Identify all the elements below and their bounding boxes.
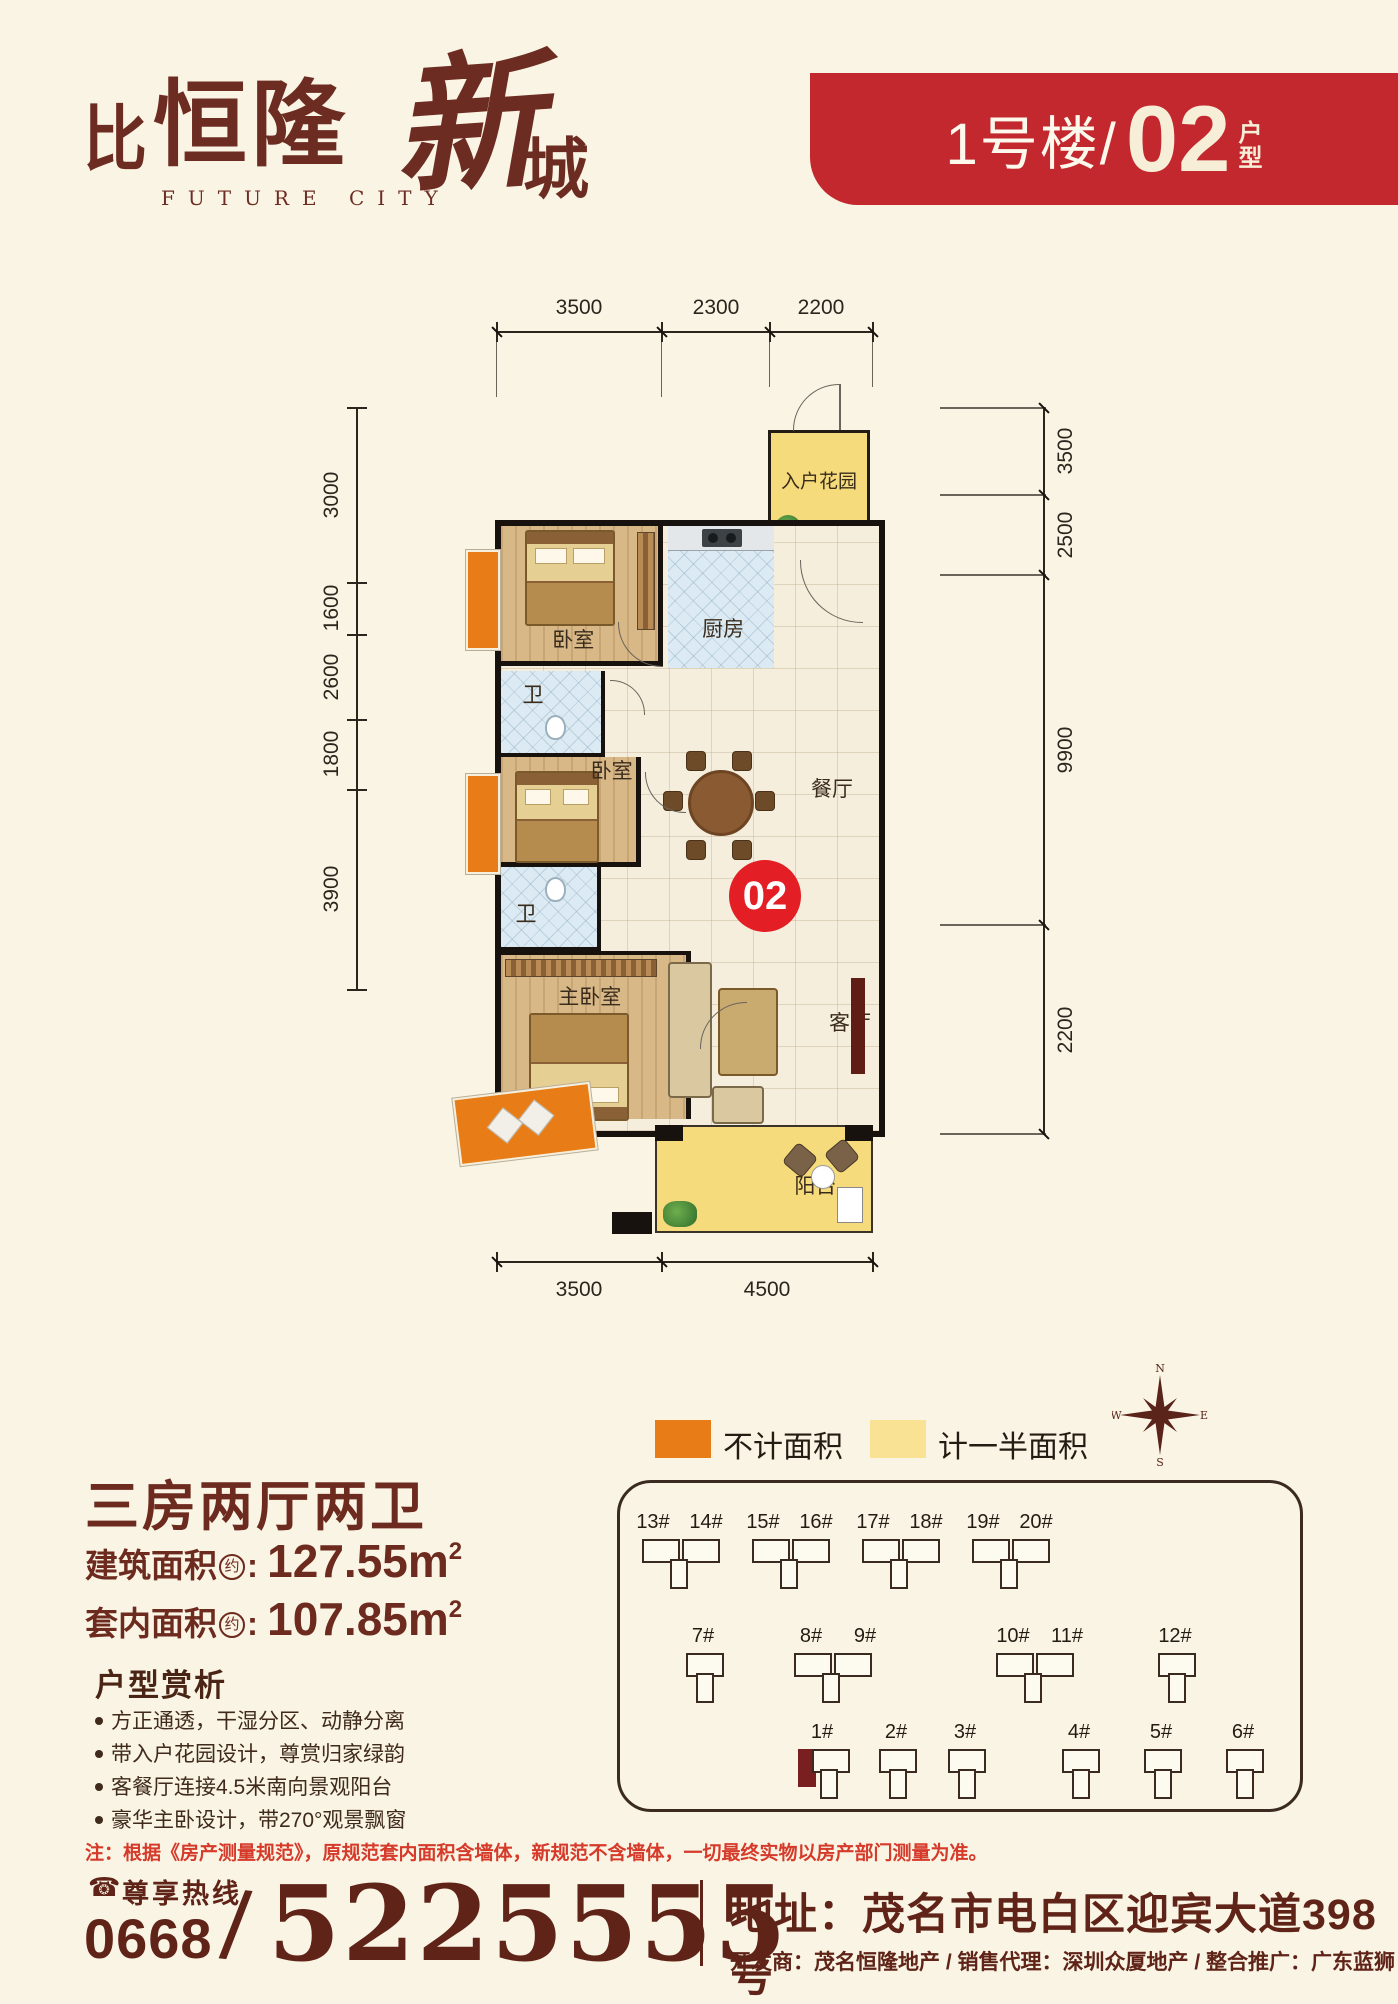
unit-banner: 1号楼/ 02 户 型 <box>810 73 1398 205</box>
door-leaf <box>839 384 841 430</box>
building-label: 9# <box>854 1625 876 1648</box>
room-label-bedroom2: 卧室 <box>591 755 633 785</box>
room-kitchen: 厨房 <box>668 526 774 668</box>
dim-label: 1600 <box>320 585 344 632</box>
unit-number-badge: 02 <box>729 860 801 932</box>
dim-label: 4500 <box>744 1278 791 1302</box>
legend-swatch-yellow <box>870 1420 926 1458</box>
chair-icon <box>732 840 752 860</box>
dim-tick <box>347 789 367 791</box>
legend-label-yellow: 计一半面积 <box>938 1422 1088 1466</box>
phone-icon: ☎ <box>88 1872 120 1903</box>
dim-label: 9900 <box>1054 727 1078 774</box>
analysis-heading: 户型赏析 <box>95 1660 227 1705</box>
ext-line <box>940 407 1046 409</box>
banner-suffix: 户 型 <box>1238 121 1262 171</box>
bullet-dot-icon <box>95 1783 103 1791</box>
colon: : <box>247 1605 267 1642</box>
room-label-bath2: 卫 <box>515 898 536 928</box>
room-label-bath1: 卫 <box>523 679 544 709</box>
banner-building: 1号楼/ <box>946 97 1118 181</box>
wardrobe-icon <box>637 532 655 630</box>
building-label: 14# <box>689 1511 722 1534</box>
dim-label: 2500 <box>1054 512 1078 559</box>
banner-suffix-top: 户 <box>1238 121 1262 146</box>
dim-tick <box>347 407 367 409</box>
building-label: 6# <box>1232 1721 1254 1744</box>
compass: N E S W <box>1112 1362 1208 1468</box>
building-label: 17# <box>856 1511 889 1534</box>
plant-icon <box>663 1201 697 1227</box>
approx-badge: 约 <box>219 1612 245 1638</box>
door-arc <box>793 384 840 431</box>
bed-icon <box>515 771 599 863</box>
ac-unit-icon <box>837 1187 863 1223</box>
dim-tick <box>347 582 367 584</box>
dim-tick <box>347 719 367 721</box>
built-area-value: 127.55m <box>267 1535 449 1587</box>
poster-canvas: { "brand": {"mark":"比","name":"恒隆","scri… <box>0 0 1398 2000</box>
ext-line <box>496 342 497 397</box>
dim-line-bottom <box>497 1261 873 1263</box>
tv-cabinet-icon <box>851 978 865 1074</box>
building-label: 4# <box>1068 1721 1090 1744</box>
dim-label: 3500 <box>556 1278 603 1302</box>
bullet-dot-icon <box>95 1816 103 1824</box>
inner-area-label: 套内面积 <box>85 1605 217 1642</box>
approx-badge: 约 <box>219 1554 245 1580</box>
building-label: 19# <box>966 1511 999 1534</box>
compass-n: N <box>1155 1362 1165 1375</box>
toilet-icon <box>545 715 566 740</box>
dim-label: 2200 <box>798 296 845 320</box>
building-label: 7# <box>692 1625 714 1648</box>
analysis-bullet: 带入户花园设计，尊赏归家绿韵 <box>95 1738 405 1768</box>
building-label: 12# <box>1158 1625 1191 1648</box>
dim-line-left <box>356 408 358 990</box>
dim-tick <box>347 989 367 991</box>
toilet-icon <box>545 877 566 902</box>
room-label-kitchen: 厨房 <box>702 613 744 643</box>
bullet-dot-icon <box>95 1717 103 1725</box>
chair-icon <box>755 791 775 811</box>
building-label: 1# <box>811 1721 833 1744</box>
dim-label: 2600 <box>320 654 344 701</box>
bay-window <box>468 776 498 872</box>
building-label: 18# <box>909 1511 942 1534</box>
building-label: 16# <box>799 1511 832 1534</box>
compass-rose-icon: N E S W <box>1112 1362 1208 1468</box>
building-label: 10# <box>996 1625 1029 1648</box>
inner-area-line: 套内面积约: 107.85m2 <box>85 1592 462 1646</box>
bay-window <box>468 552 498 648</box>
compass-w: W <box>1112 1409 1122 1422</box>
room-bedroom2: 卧室 <box>501 757 641 867</box>
logo-mark: 比 <box>83 82 147 185</box>
ext-line <box>872 342 873 387</box>
room-bath1: 卫 <box>501 671 605 757</box>
layout-title: 三房两厅两卫 <box>85 1462 427 1541</box>
brand-logo: 比 恒隆 FUTURE CITY 新 城 <box>75 40 675 220</box>
dim-label: 2300 <box>693 296 740 320</box>
ext-line <box>940 1133 1046 1135</box>
building-label: 15# <box>746 1511 779 1534</box>
ext-line <box>769 342 770 387</box>
colon: : <box>247 1547 267 1584</box>
chair-icon <box>686 751 706 771</box>
pillow-icon <box>487 1107 523 1143</box>
wall-block <box>845 1125 873 1141</box>
unit-number-text: 02 <box>743 874 788 919</box>
dim-label: 3900 <box>320 866 344 913</box>
dim-label: 2200 <box>1054 1007 1078 1054</box>
dim-label: 1800 <box>320 731 344 778</box>
dim-label: 3500 <box>1054 428 1078 475</box>
wardrobe-icon <box>505 959 657 977</box>
pillow-icon <box>518 1099 554 1135</box>
dim-label: 3500 <box>556 296 603 320</box>
site-map: 13# 14# 15# 16# 17# 18# 19# 20# 7# 8# 9#… <box>617 1480 1303 1812</box>
room-label-master: 主卧室 <box>558 981 621 1011</box>
building-label: 20# <box>1019 1511 1052 1534</box>
burner-icon <box>726 533 736 543</box>
building-label: 2# <box>885 1721 907 1744</box>
sofa-icon <box>712 1086 764 1124</box>
wall-block <box>612 1212 652 1234</box>
compass-s: S <box>1156 1456 1164 1468</box>
building-label: 11# <box>1051 1625 1083 1648</box>
banner-suffix-bottom: 型 <box>1238 146 1262 171</box>
bay-window-corner <box>455 1084 596 1164</box>
dim-tick <box>347 634 367 636</box>
ext-line <box>940 924 1046 926</box>
chair-icon <box>686 840 706 860</box>
chair-icon <box>732 751 752 771</box>
logo-name: 恒隆 <box>153 78 349 172</box>
ext-line <box>940 574 1046 576</box>
bullet-text: 带入户花园设计，尊赏归家绿韵 <box>111 1743 405 1766</box>
banner-unit-number: 02 <box>1126 92 1231 186</box>
room-label-entry-garden: 入户花园 <box>781 467 857 494</box>
bullet-text: 客餐厅连接4.5米南向景观阳台 <box>111 1776 392 1799</box>
room-bath2: 卫 <box>501 867 601 951</box>
compass-e: E <box>1200 1409 1208 1422</box>
dim-label: 3000 <box>320 472 344 519</box>
footer-divider <box>700 1880 703 1966</box>
room-label-bedroom1: 卧室 <box>552 624 594 654</box>
bullet-dot-icon <box>95 1750 103 1758</box>
room-label-dining: 餐厅 <box>811 773 853 803</box>
wall-block <box>655 1125 683 1141</box>
dining-table-icon <box>688 770 754 836</box>
dim-line-right <box>1043 408 1045 1135</box>
inner-area-value: 107.85m <box>267 1593 449 1645</box>
building-label: 5# <box>1150 1721 1172 1744</box>
bullet-text: 方正通透，干湿分区、动静分离 <box>111 1710 405 1733</box>
ext-line <box>940 494 1046 496</box>
dim-line-top <box>497 331 873 333</box>
ext-line <box>661 342 662 397</box>
credits-line: 开发商：茂名恒隆地产 / 销售代理：深圳众厦地产 / 整合推广：广东蓝狮 <box>730 1946 1395 1976</box>
building-label: 8# <box>800 1625 822 1648</box>
analysis-bullet: 豪华主卧设计，带270°观景飘窗 <box>95 1804 406 1834</box>
logo-script-cheng: 城 <box>523 136 589 202</box>
hotline-number: 5225555 <box>268 1862 789 1985</box>
room-balcony: 阳台 <box>655 1125 873 1233</box>
built-area-label: 建筑面积 <box>85 1547 217 1584</box>
bullet-text: 豪华主卧设计，带270°观景飘窗 <box>111 1809 406 1832</box>
sup-2: 2 <box>449 1596 462 1623</box>
address-line: 地址：茂名市电白区迎宾大道398号 <box>730 1880 1398 2004</box>
bed-icon <box>525 530 615 626</box>
legend-label-orange: 不计面积 <box>723 1422 843 1466</box>
building-label: 13# <box>636 1511 669 1534</box>
building-label: 3# <box>954 1721 976 1744</box>
legend-swatch-orange <box>655 1420 711 1458</box>
analysis-bullet: 客餐厅连接4.5米南向景观阳台 <box>95 1771 392 1801</box>
built-area-line: 建筑面积约: 127.55m2 <box>85 1534 462 1588</box>
analysis-bullet: 方正通透，干湿分区、动静分离 <box>95 1705 405 1735</box>
measurement-note: 注：根据《房产测量规范》，原规范套内面积含墙体，新规范不含墙体，一切最终实物以房… <box>85 1838 988 1865</box>
sup-2: 2 <box>449 1538 462 1565</box>
burner-icon <box>708 533 718 543</box>
balcony-table-icon <box>811 1165 835 1189</box>
hotline-area-code: 0668 <box>84 1906 213 1971</box>
